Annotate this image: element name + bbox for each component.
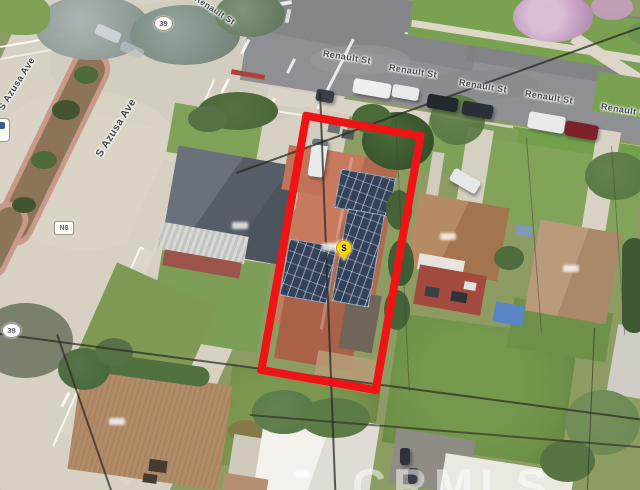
blurred-address-label (563, 265, 579, 272)
route-shield-39: 39 (154, 16, 173, 31)
median-bush (52, 100, 80, 120)
median-bush (12, 197, 36, 213)
partial-route-shield (0, 118, 10, 142)
corner-grass (0, 0, 50, 35)
roof-clutter (142, 473, 157, 484)
blue-tarp (492, 302, 525, 327)
blurred-address-label (232, 222, 248, 229)
pin-tail (340, 254, 348, 261)
yard-tree (494, 246, 524, 270)
blue-tarp (515, 224, 533, 238)
route-shield-39: 39 (2, 323, 21, 338)
median-bush (74, 66, 98, 84)
roof-clutter (148, 459, 167, 473)
blurred-address-label (295, 470, 310, 477)
road-marker-n8: N8 (54, 221, 74, 235)
blurred-address-label (440, 233, 456, 240)
shield-glyph (0, 122, 5, 129)
blurred-address-label (109, 418, 125, 425)
east-hedge (622, 238, 640, 333)
corner-bushes (188, 106, 228, 132)
aerial-satellite-photo: $ Renault St Renault St Renault St Renau… (0, 0, 640, 490)
east-edge-roof (606, 324, 640, 400)
mls-watermark: CRMLS (352, 458, 554, 490)
median-bush (31, 151, 57, 169)
yard-tree (95, 338, 133, 366)
property-price-pin: $ (336, 240, 352, 261)
